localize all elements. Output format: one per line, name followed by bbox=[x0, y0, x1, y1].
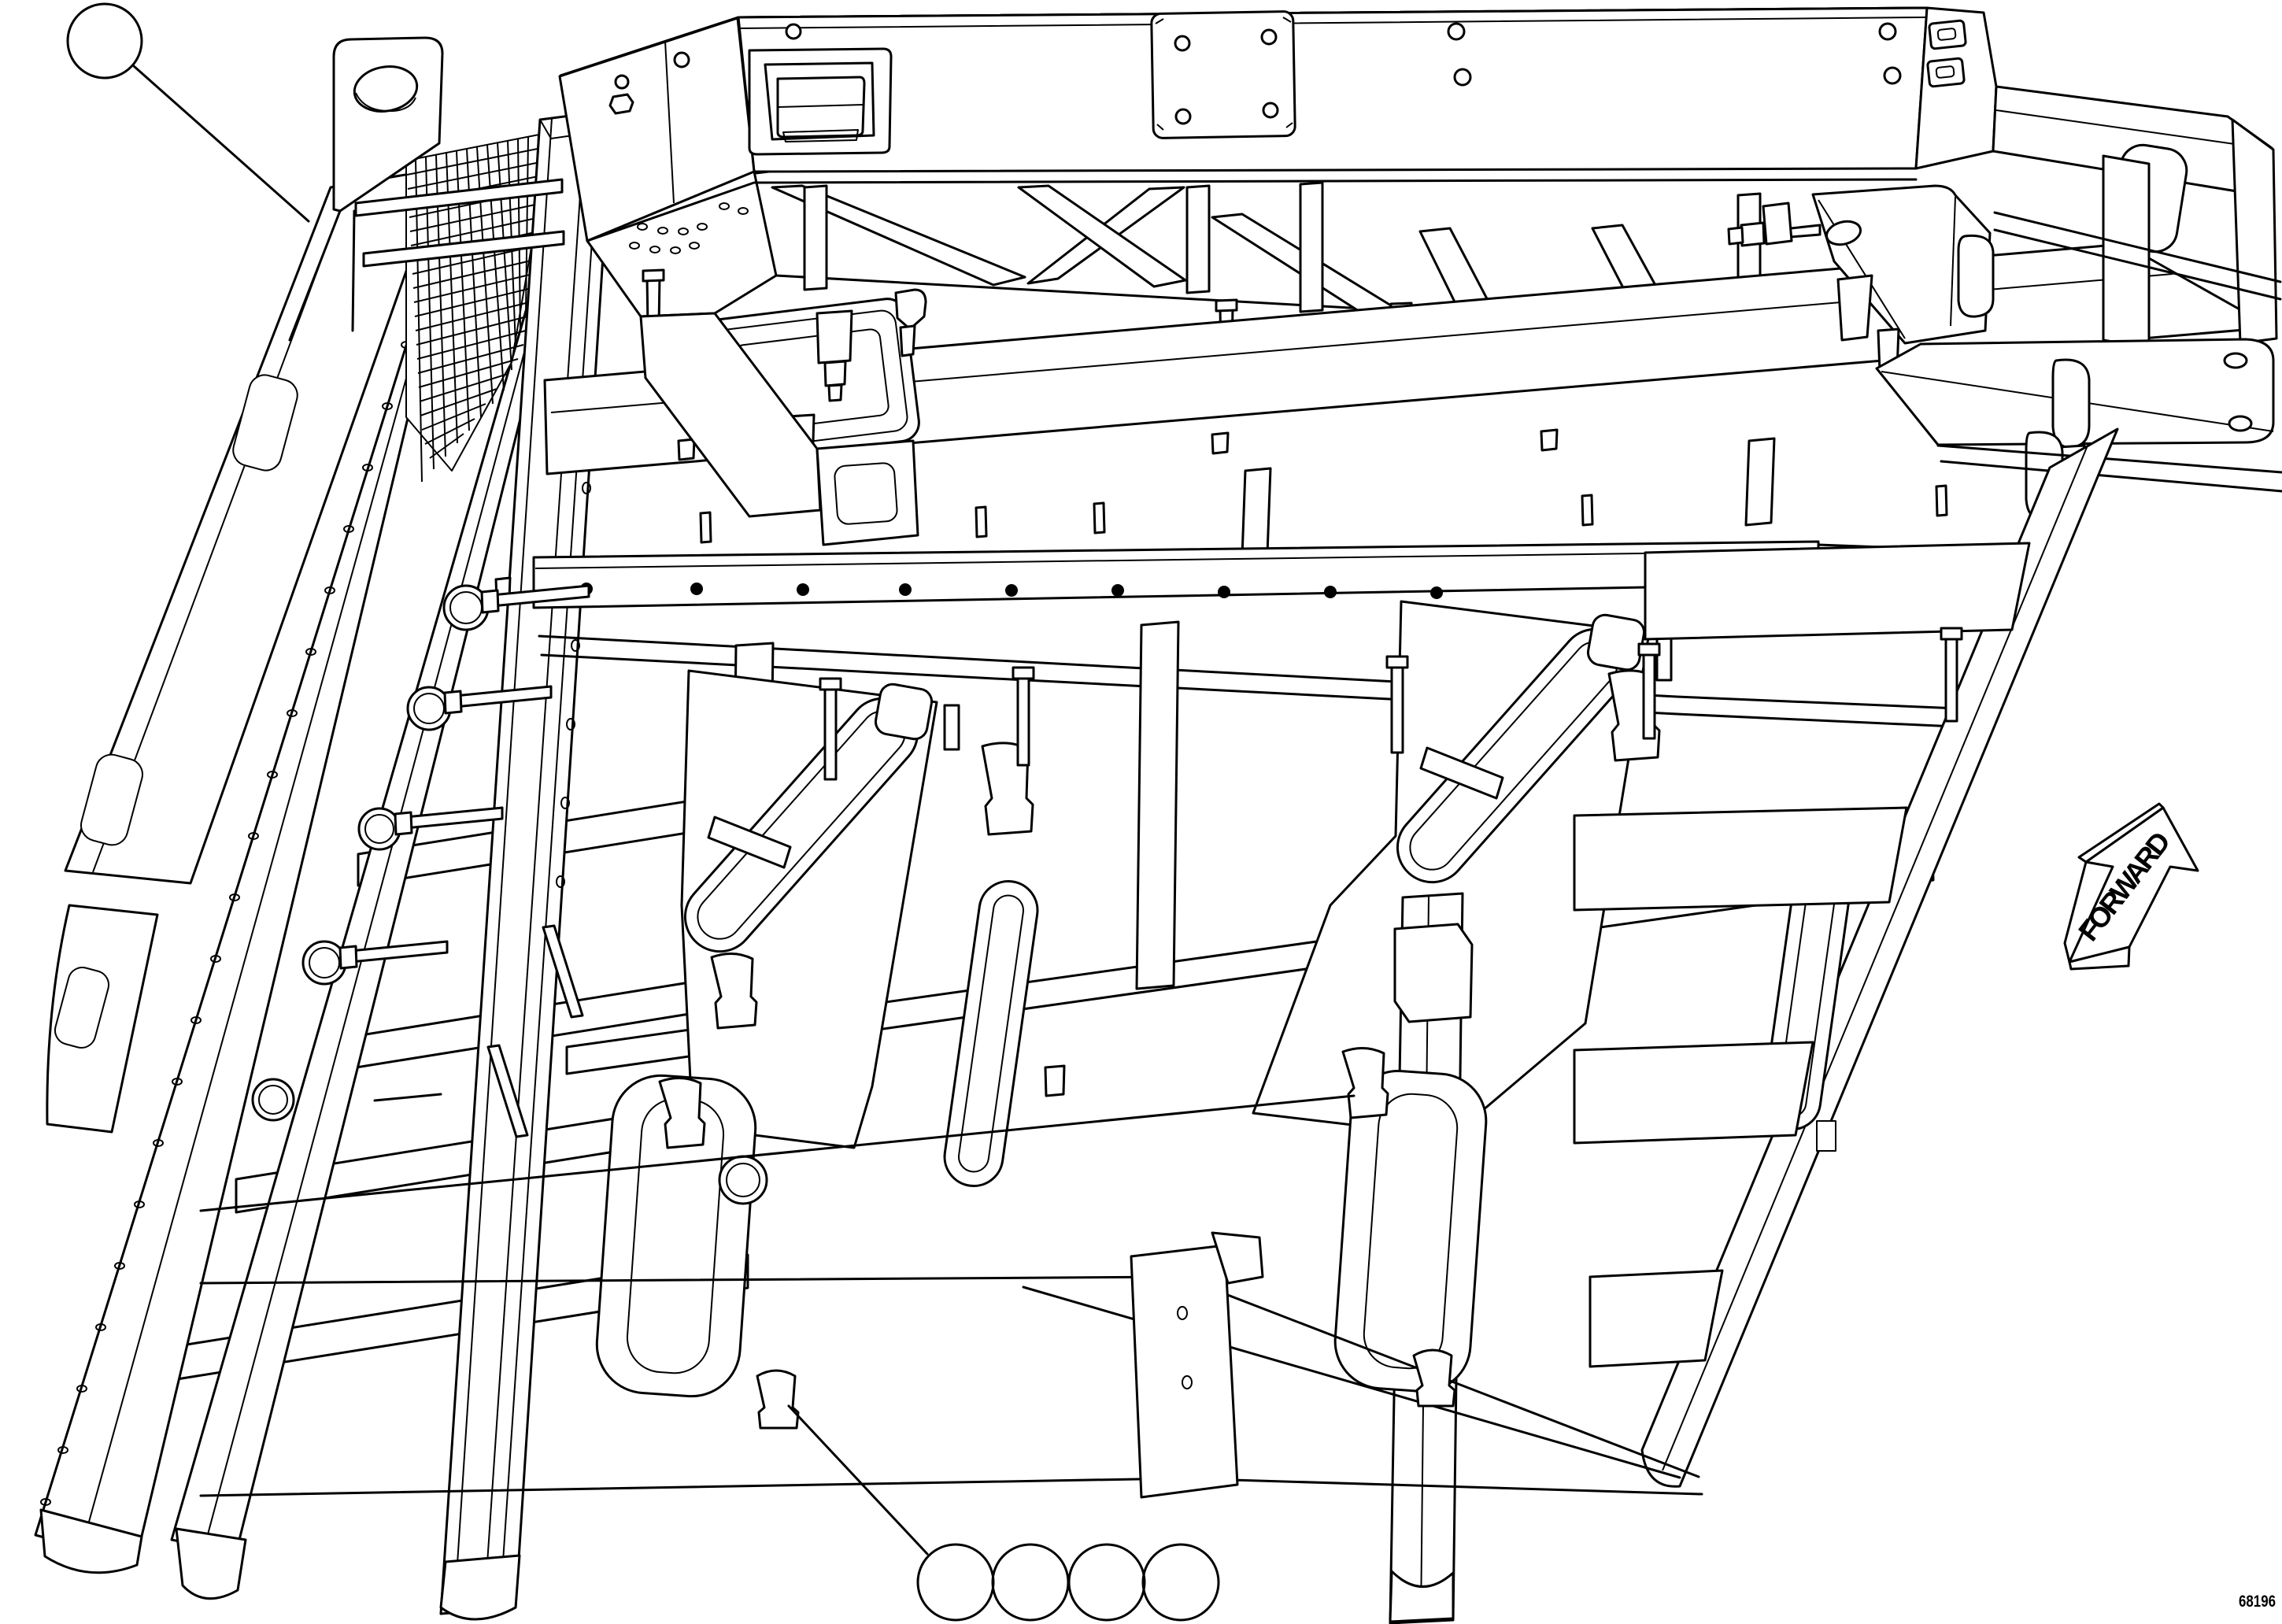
svg-text:68196: 68196 bbox=[2239, 1593, 2276, 1611]
